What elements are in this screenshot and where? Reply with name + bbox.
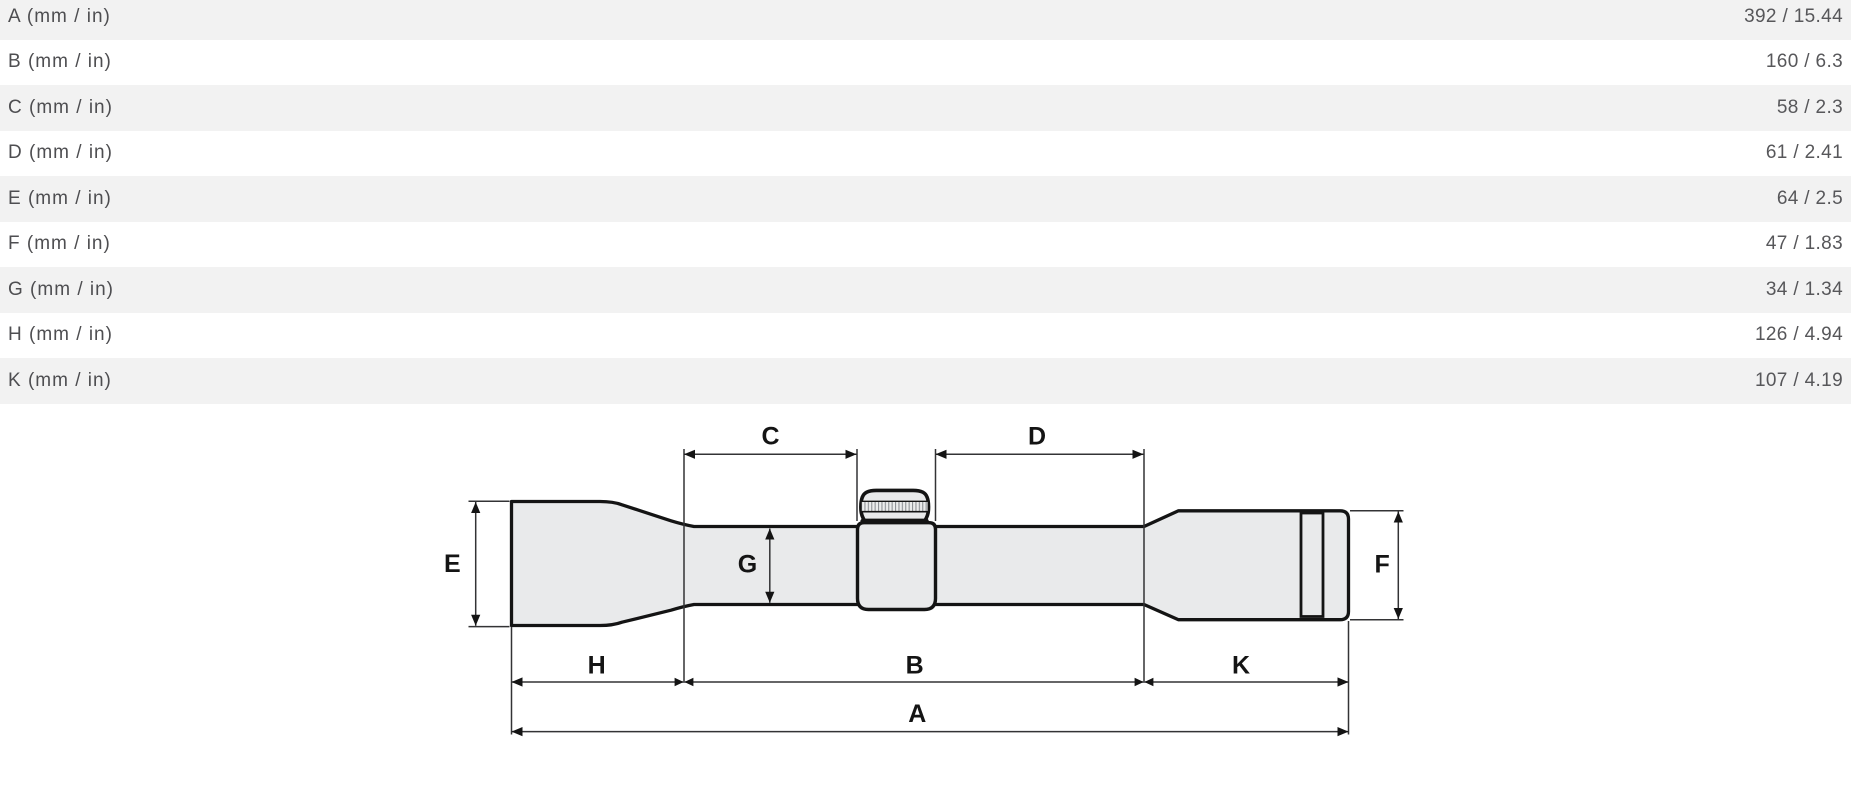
svg-text:F: F (1375, 550, 1390, 578)
svg-text:E: E (444, 550, 461, 578)
svg-text:A: A (908, 700, 926, 728)
svg-text:G: G (738, 551, 757, 579)
svg-text:H: H (588, 651, 606, 679)
svg-text:D: D (1028, 423, 1046, 451)
svg-text:K: K (1232, 651, 1250, 679)
svg-text:B: B (906, 651, 924, 679)
svg-text:C: C (761, 423, 779, 451)
